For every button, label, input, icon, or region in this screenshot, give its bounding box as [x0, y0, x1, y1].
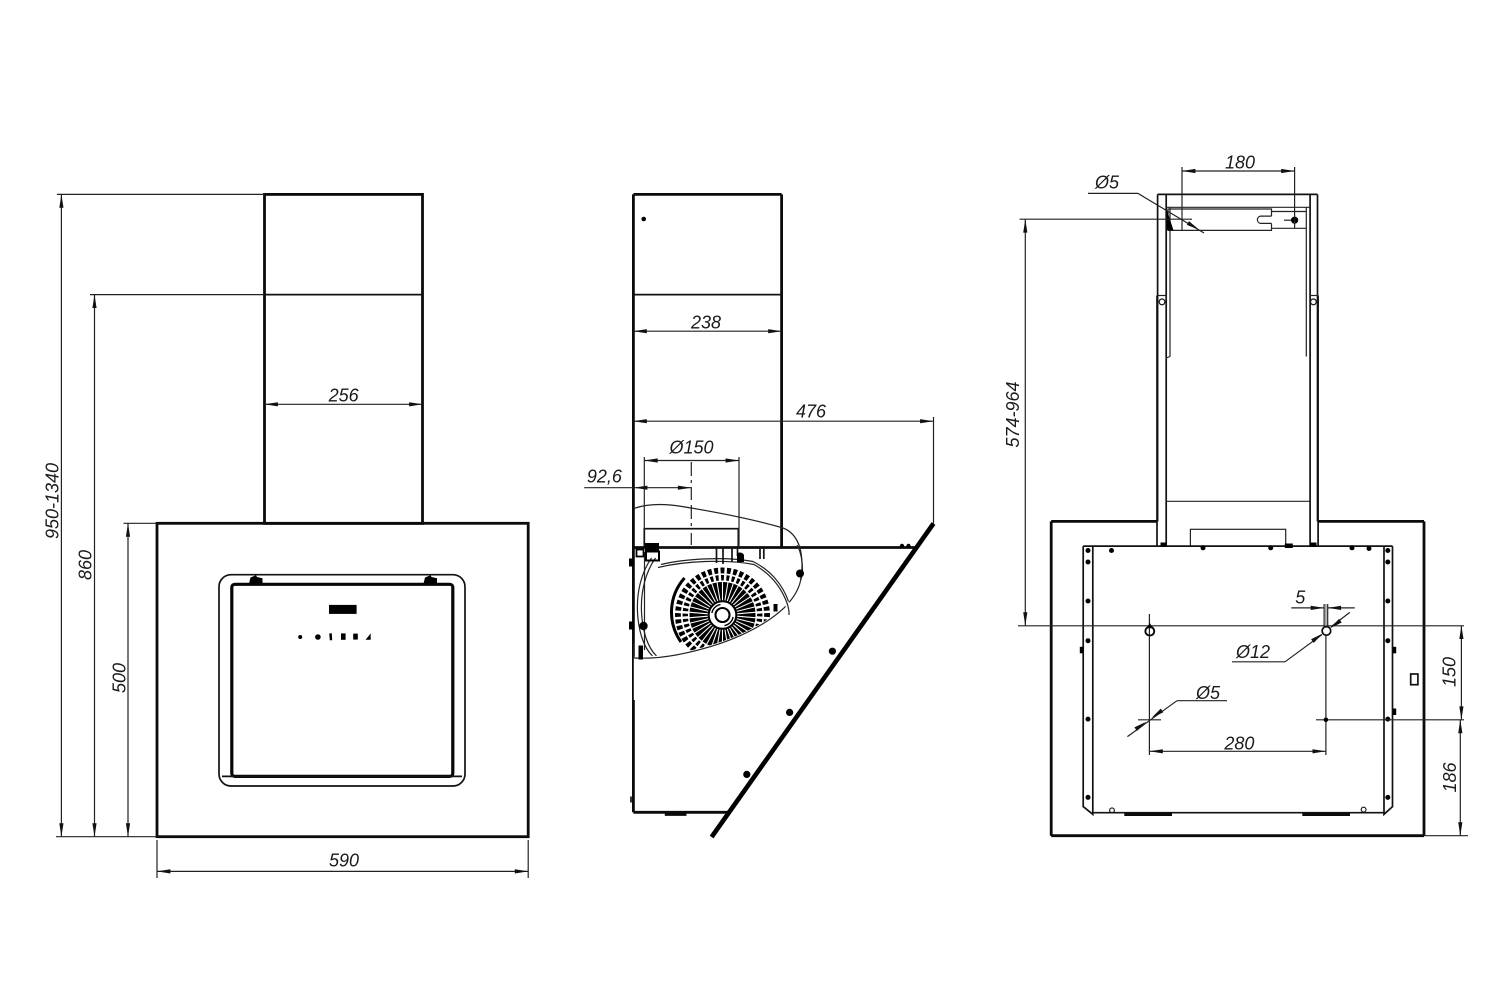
svg-text:476: 476 — [796, 402, 827, 422]
svg-text:Ø5: Ø5 — [1094, 173, 1120, 193]
svg-text:256: 256 — [328, 386, 360, 406]
svg-text:5: 5 — [1295, 588, 1306, 608]
svg-text:92,6: 92,6 — [587, 467, 623, 487]
svg-text:280: 280 — [1223, 734, 1254, 754]
svg-text:574-964: 574-964 — [1003, 381, 1023, 447]
svg-text:180: 180 — [1225, 153, 1255, 173]
svg-text:150: 150 — [1440, 657, 1460, 687]
svg-text:590: 590 — [329, 851, 359, 871]
svg-text:860: 860 — [76, 550, 96, 580]
svg-text:186: 186 — [1440, 762, 1460, 793]
svg-text:950-1340: 950-1340 — [43, 463, 63, 539]
svg-text:238: 238 — [690, 313, 721, 333]
svg-text:Ø12: Ø12 — [1235, 642, 1270, 662]
svg-text:Ø5: Ø5 — [1195, 683, 1221, 703]
svg-text:Ø150: Ø150 — [668, 438, 713, 458]
svg-text:500: 500 — [110, 663, 130, 693]
